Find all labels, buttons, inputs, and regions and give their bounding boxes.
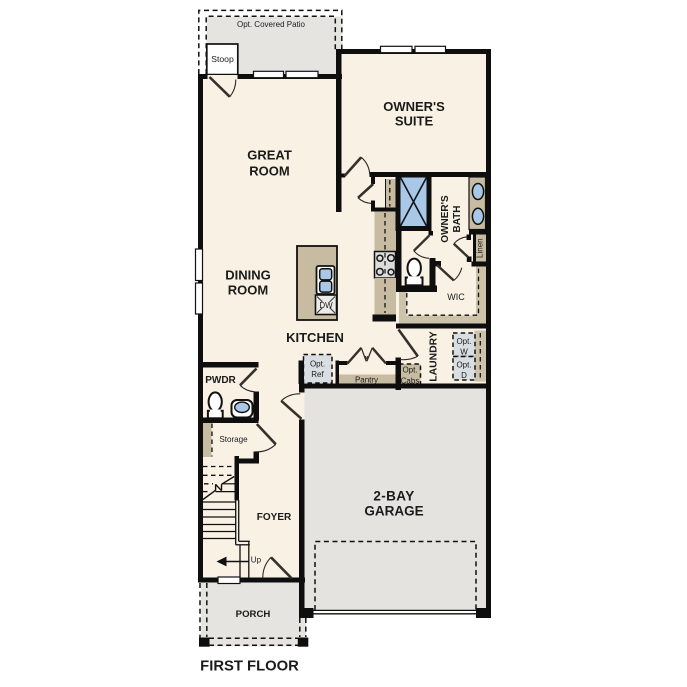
svg-text:GREAT: GREAT — [247, 148, 292, 163]
svg-text:FOYER: FOYER — [257, 512, 292, 523]
svg-text:Up: Up — [251, 556, 262, 565]
svg-text:LAUNDRY: LAUNDRY — [429, 331, 440, 381]
svg-text:ROOM: ROOM — [249, 164, 289, 179]
svg-text:Stoop: Stoop — [211, 54, 234, 64]
svg-text:ROOM: ROOM — [228, 283, 268, 298]
svg-text:PWDR: PWDR — [205, 375, 236, 386]
svg-text:FIRST FLOOR: FIRST FLOOR — [200, 659, 299, 675]
svg-text:OWNER'S: OWNER'S — [383, 99, 445, 114]
svg-text:Opt. Covered Patio: Opt. Covered Patio — [237, 20, 306, 29]
svg-text:Pantry: Pantry — [355, 376, 378, 385]
svg-text:Opt.: Opt. — [456, 337, 471, 346]
svg-text:KITCHEN: KITCHEN — [286, 330, 344, 345]
svg-text:WIC: WIC — [447, 292, 465, 302]
svg-text:OWNER'S: OWNER'S — [440, 195, 451, 243]
svg-text:DW: DW — [319, 301, 333, 310]
svg-text:DINING: DINING — [225, 268, 271, 283]
svg-text:Ref: Ref — [311, 370, 324, 379]
svg-text:SUITE: SUITE — [395, 114, 434, 129]
svg-text:BATH: BATH — [452, 205, 463, 232]
svg-text:Opt.: Opt. — [402, 366, 417, 375]
svg-text:Storage: Storage — [219, 435, 248, 444]
svg-text:W: W — [460, 348, 468, 357]
svg-text:D: D — [461, 371, 467, 380]
svg-text:Opt.: Opt. — [310, 360, 325, 369]
svg-text:2-BAY: 2-BAY — [373, 489, 414, 504]
svg-text:PORCH: PORCH — [236, 609, 271, 620]
svg-text:GARAGE: GARAGE — [364, 504, 423, 519]
svg-text:Linen: Linen — [476, 238, 485, 258]
svg-text:Opt.: Opt. — [456, 361, 471, 370]
